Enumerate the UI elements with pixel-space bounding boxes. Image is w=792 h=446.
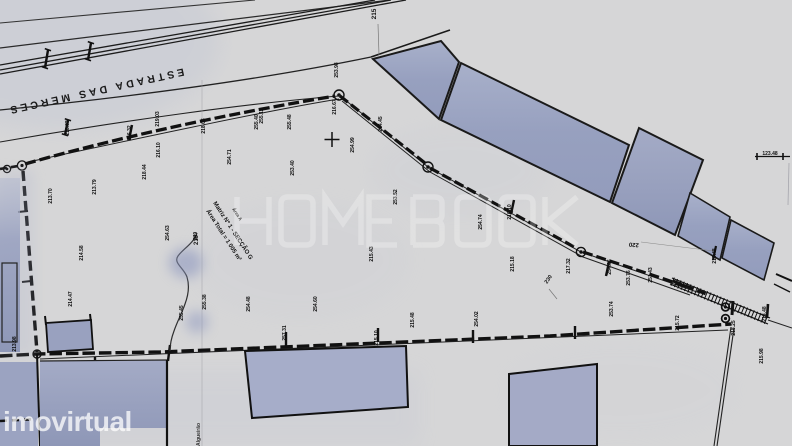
svg-text:254.02: 254.02	[474, 311, 480, 327]
svg-text:255.48: 255.48	[287, 114, 293, 130]
svg-text:215.43: 215.43	[369, 246, 375, 262]
svg-text:218.44: 218.44	[142, 164, 148, 180]
svg-text:254.48: 254.48	[246, 296, 252, 312]
svg-text:214.45: 214.45	[378, 116, 384, 132]
svg-text:214.47: 214.47	[68, 291, 74, 307]
svg-text:215.98: 215.98	[759, 348, 765, 364]
svg-text:255.12: 255.12	[259, 108, 265, 124]
svg-text:253.40: 253.40	[290, 160, 296, 176]
svg-text:123.48: 123.48	[762, 151, 778, 157]
svg-text:218.48: 218.48	[762, 306, 768, 322]
svg-text:253.76: 253.76	[626, 270, 632, 286]
svg-text:219.03: 219.03	[155, 111, 161, 127]
svg-text:216.10: 216.10	[156, 142, 162, 158]
svg-text:219.48: 219.48	[712, 248, 718, 264]
svg-text:213.70: 213.70	[48, 188, 54, 204]
svg-text:254.99: 254.99	[350, 137, 356, 153]
svg-text:213.79: 213.79	[92, 179, 98, 195]
svg-text:216.32: 216.32	[127, 125, 133, 141]
svg-text:217.32: 217.32	[566, 258, 572, 274]
svg-text:254.60: 254.60	[313, 296, 319, 312]
svg-text:254.74: 254.74	[478, 214, 484, 230]
svg-text:255.45: 255.45	[179, 305, 185, 321]
svg-text:253.74: 253.74	[609, 301, 615, 317]
svg-text:216.67: 216.67	[332, 99, 338, 115]
svg-text:215.48: 215.48	[410, 312, 416, 328]
svg-text:218.05: 218.05	[201, 118, 207, 134]
svg-text:imovirtual: imovirtual	[3, 406, 132, 437]
svg-text:214.58: 214.58	[79, 245, 85, 261]
svg-text:254.71: 254.71	[227, 149, 233, 165]
svg-text:218.25: 218.25	[731, 320, 737, 336]
svg-text:253.98: 253.98	[334, 62, 340, 78]
svg-text:220: 220	[628, 241, 639, 248]
svg-text:215.18: 215.18	[510, 256, 516, 272]
svg-text:254.86: 254.86	[607, 259, 613, 275]
svg-text:215.72: 215.72	[675, 315, 681, 331]
svg-text:254.63: 254.63	[165, 225, 171, 241]
svg-text:257.31: 257.31	[282, 325, 288, 341]
svg-text:Algueirão: Algueirão	[196, 423, 202, 446]
svg-text:251.43: 251.43	[648, 267, 654, 283]
svg-text:215: 215	[371, 8, 378, 19]
svg-text:215.10: 215.10	[374, 330, 380, 346]
svg-text:255.38: 255.38	[202, 294, 208, 310]
svg-text:216.10: 216.10	[507, 204, 513, 220]
svg-text:249: 249	[193, 232, 199, 241]
svg-text:218.63: 218.63	[65, 120, 71, 136]
svg-text:213.98: 213.98	[12, 336, 18, 352]
